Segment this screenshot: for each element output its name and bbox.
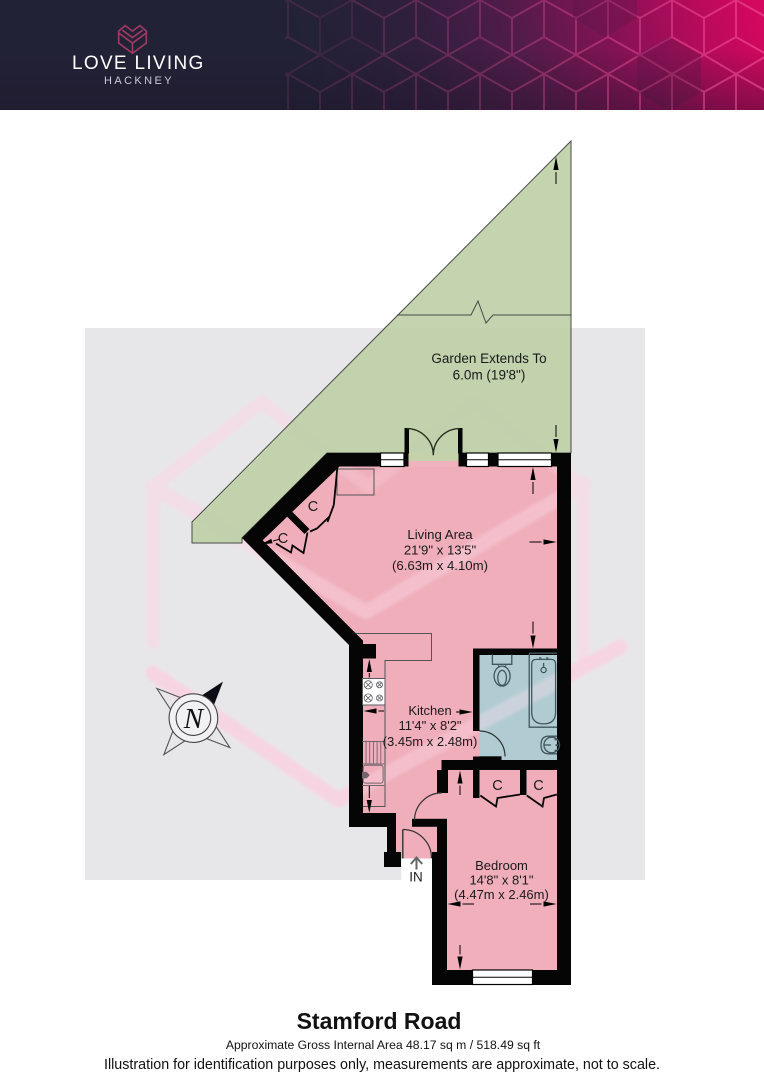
svg-text:6.0m (19'8"): 6.0m (19'8") (453, 368, 526, 383)
svg-text:14'8" x 8'1": 14'8" x 8'1" (469, 873, 533, 888)
svg-text:C: C (308, 499, 318, 515)
svg-text:Living Area: Living Area (407, 527, 473, 542)
svg-text:(3.45m x 2.48m): (3.45m x 2.48m) (383, 734, 478, 749)
svg-text:Kitchen: Kitchen (408, 703, 451, 718)
svg-text:(4.47m x 2.46m): (4.47m x 2.46m) (454, 887, 549, 902)
svg-text:(6.63m x 4.10m): (6.63m x 4.10m) (392, 558, 488, 573)
svg-text:C: C (533, 778, 543, 794)
svg-text:Bedroom: Bedroom (475, 858, 528, 873)
svg-text:Garden Extends To: Garden Extends To (431, 351, 546, 366)
svg-text:C: C (492, 778, 502, 794)
svg-text:N: N (183, 703, 205, 735)
svg-text:11'4" x 8'2": 11'4" x 8'2" (398, 718, 461, 733)
svg-text:21'9" x 13'5": 21'9" x 13'5" (404, 543, 477, 558)
svg-text:IN: IN (409, 870, 423, 885)
